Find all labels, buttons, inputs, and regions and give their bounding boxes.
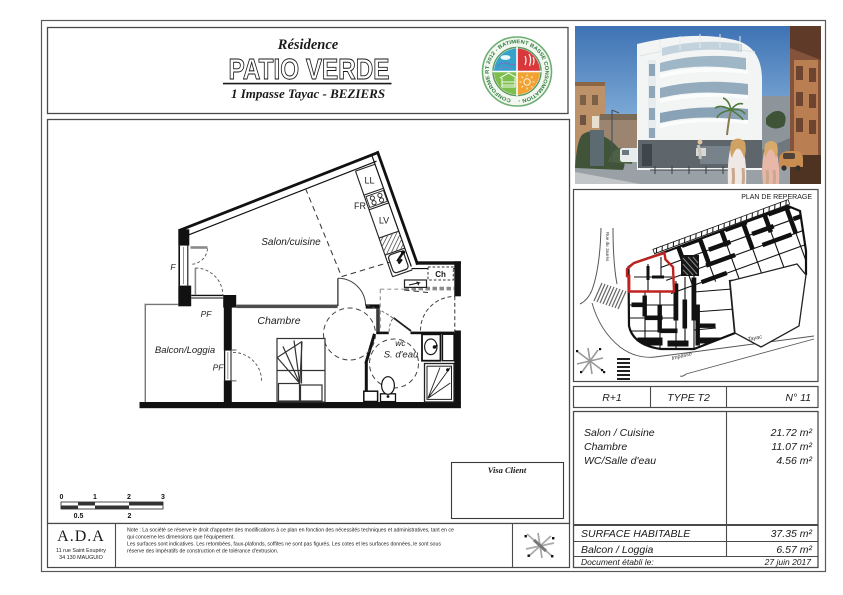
svg-text:PF: PF: [201, 309, 213, 319]
svg-text:2: 2: [128, 513, 132, 520]
svg-text:21.72 m²: 21.72 m²: [770, 427, 813, 439]
svg-text:0: 0: [60, 494, 64, 501]
svg-text:Salon / Cuisine: Salon / Cuisine: [584, 427, 655, 439]
svg-text:TYPE T2: TYPE T2: [667, 392, 710, 404]
svg-text:Chambre: Chambre: [584, 441, 627, 453]
svg-text:PF: PF: [213, 363, 225, 373]
svg-text:S. d'eau: S. d'eau: [384, 350, 419, 361]
svg-text:1 Impasse Tayac - BEZIERS: 1 Impasse Tayac - BEZIERS: [231, 86, 385, 101]
svg-text:F: F: [170, 262, 176, 272]
svg-text:réserve des impératifs de cons: réserve des impératifs de construction e…: [127, 549, 278, 555]
svg-text:11 rue Saint Exupéry: 11 rue Saint Exupéry: [56, 548, 106, 554]
svg-text:WC/Salle d'eau: WC/Salle d'eau: [584, 455, 656, 467]
svg-text:wc: wc: [395, 338, 406, 348]
svg-text:6.57 m²: 6.57 m²: [776, 544, 812, 556]
svg-text:R+1: R+1: [602, 392, 622, 404]
svg-text:11.07 m²: 11.07 m²: [771, 441, 812, 453]
svg-text:0.5: 0.5: [74, 513, 84, 520]
svg-text:Chambre: Chambre: [257, 315, 300, 327]
svg-text:Les surfaces sont indicatives.: Les surfaces sont indicatives. Les retom…: [127, 542, 441, 548]
svg-text:Ch: Ch: [435, 270, 446, 279]
svg-text:Rue du Jaurès: Rue du Jaurès: [605, 232, 610, 262]
svg-text:4.56 m²: 4.56 m²: [776, 455, 812, 467]
svg-text:Note : La société se réserve l: Note : La société se réserve le droit d'…: [127, 528, 454, 534]
svg-text:Document établi le:: Document établi le:: [581, 557, 654, 567]
svg-text:Balcon / Loggia: Balcon / Loggia: [581, 544, 654, 556]
svg-text:N° 11: N° 11: [785, 392, 811, 404]
svg-text:qui concerne les dimensions qu: qui concerne les dimensions que l'équipe…: [127, 535, 235, 541]
svg-text:34 130 MAUGUIO: 34 130 MAUGUIO: [59, 555, 103, 561]
svg-text:LL: LL: [364, 176, 374, 186]
svg-text:Visa Client: Visa Client: [488, 465, 527, 475]
svg-text:27 juin 2017: 27 juin 2017: [764, 557, 812, 567]
svg-text:Résidence: Résidence: [277, 37, 339, 53]
svg-text:Balcon/Loggia: Balcon/Loggia: [155, 345, 215, 356]
svg-text:1: 1: [93, 494, 97, 501]
svg-text:PATIO VERDE: PATIO VERDE: [229, 54, 390, 86]
svg-text:SURFACE HABITABLE: SURFACE HABITABLE: [581, 528, 691, 540]
svg-text:2: 2: [127, 494, 131, 501]
svg-text:PLAN DE REPERAGE: PLAN DE REPERAGE: [741, 194, 812, 201]
svg-text:A.D.A: A.D.A: [57, 528, 105, 545]
svg-text:37.35 m²: 37.35 m²: [771, 528, 813, 540]
svg-text:LV: LV: [379, 216, 389, 226]
svg-text:FR: FR: [354, 201, 366, 211]
svg-text:3: 3: [161, 494, 165, 501]
svg-text:Salon/cuisine: Salon/cuisine: [261, 237, 321, 248]
